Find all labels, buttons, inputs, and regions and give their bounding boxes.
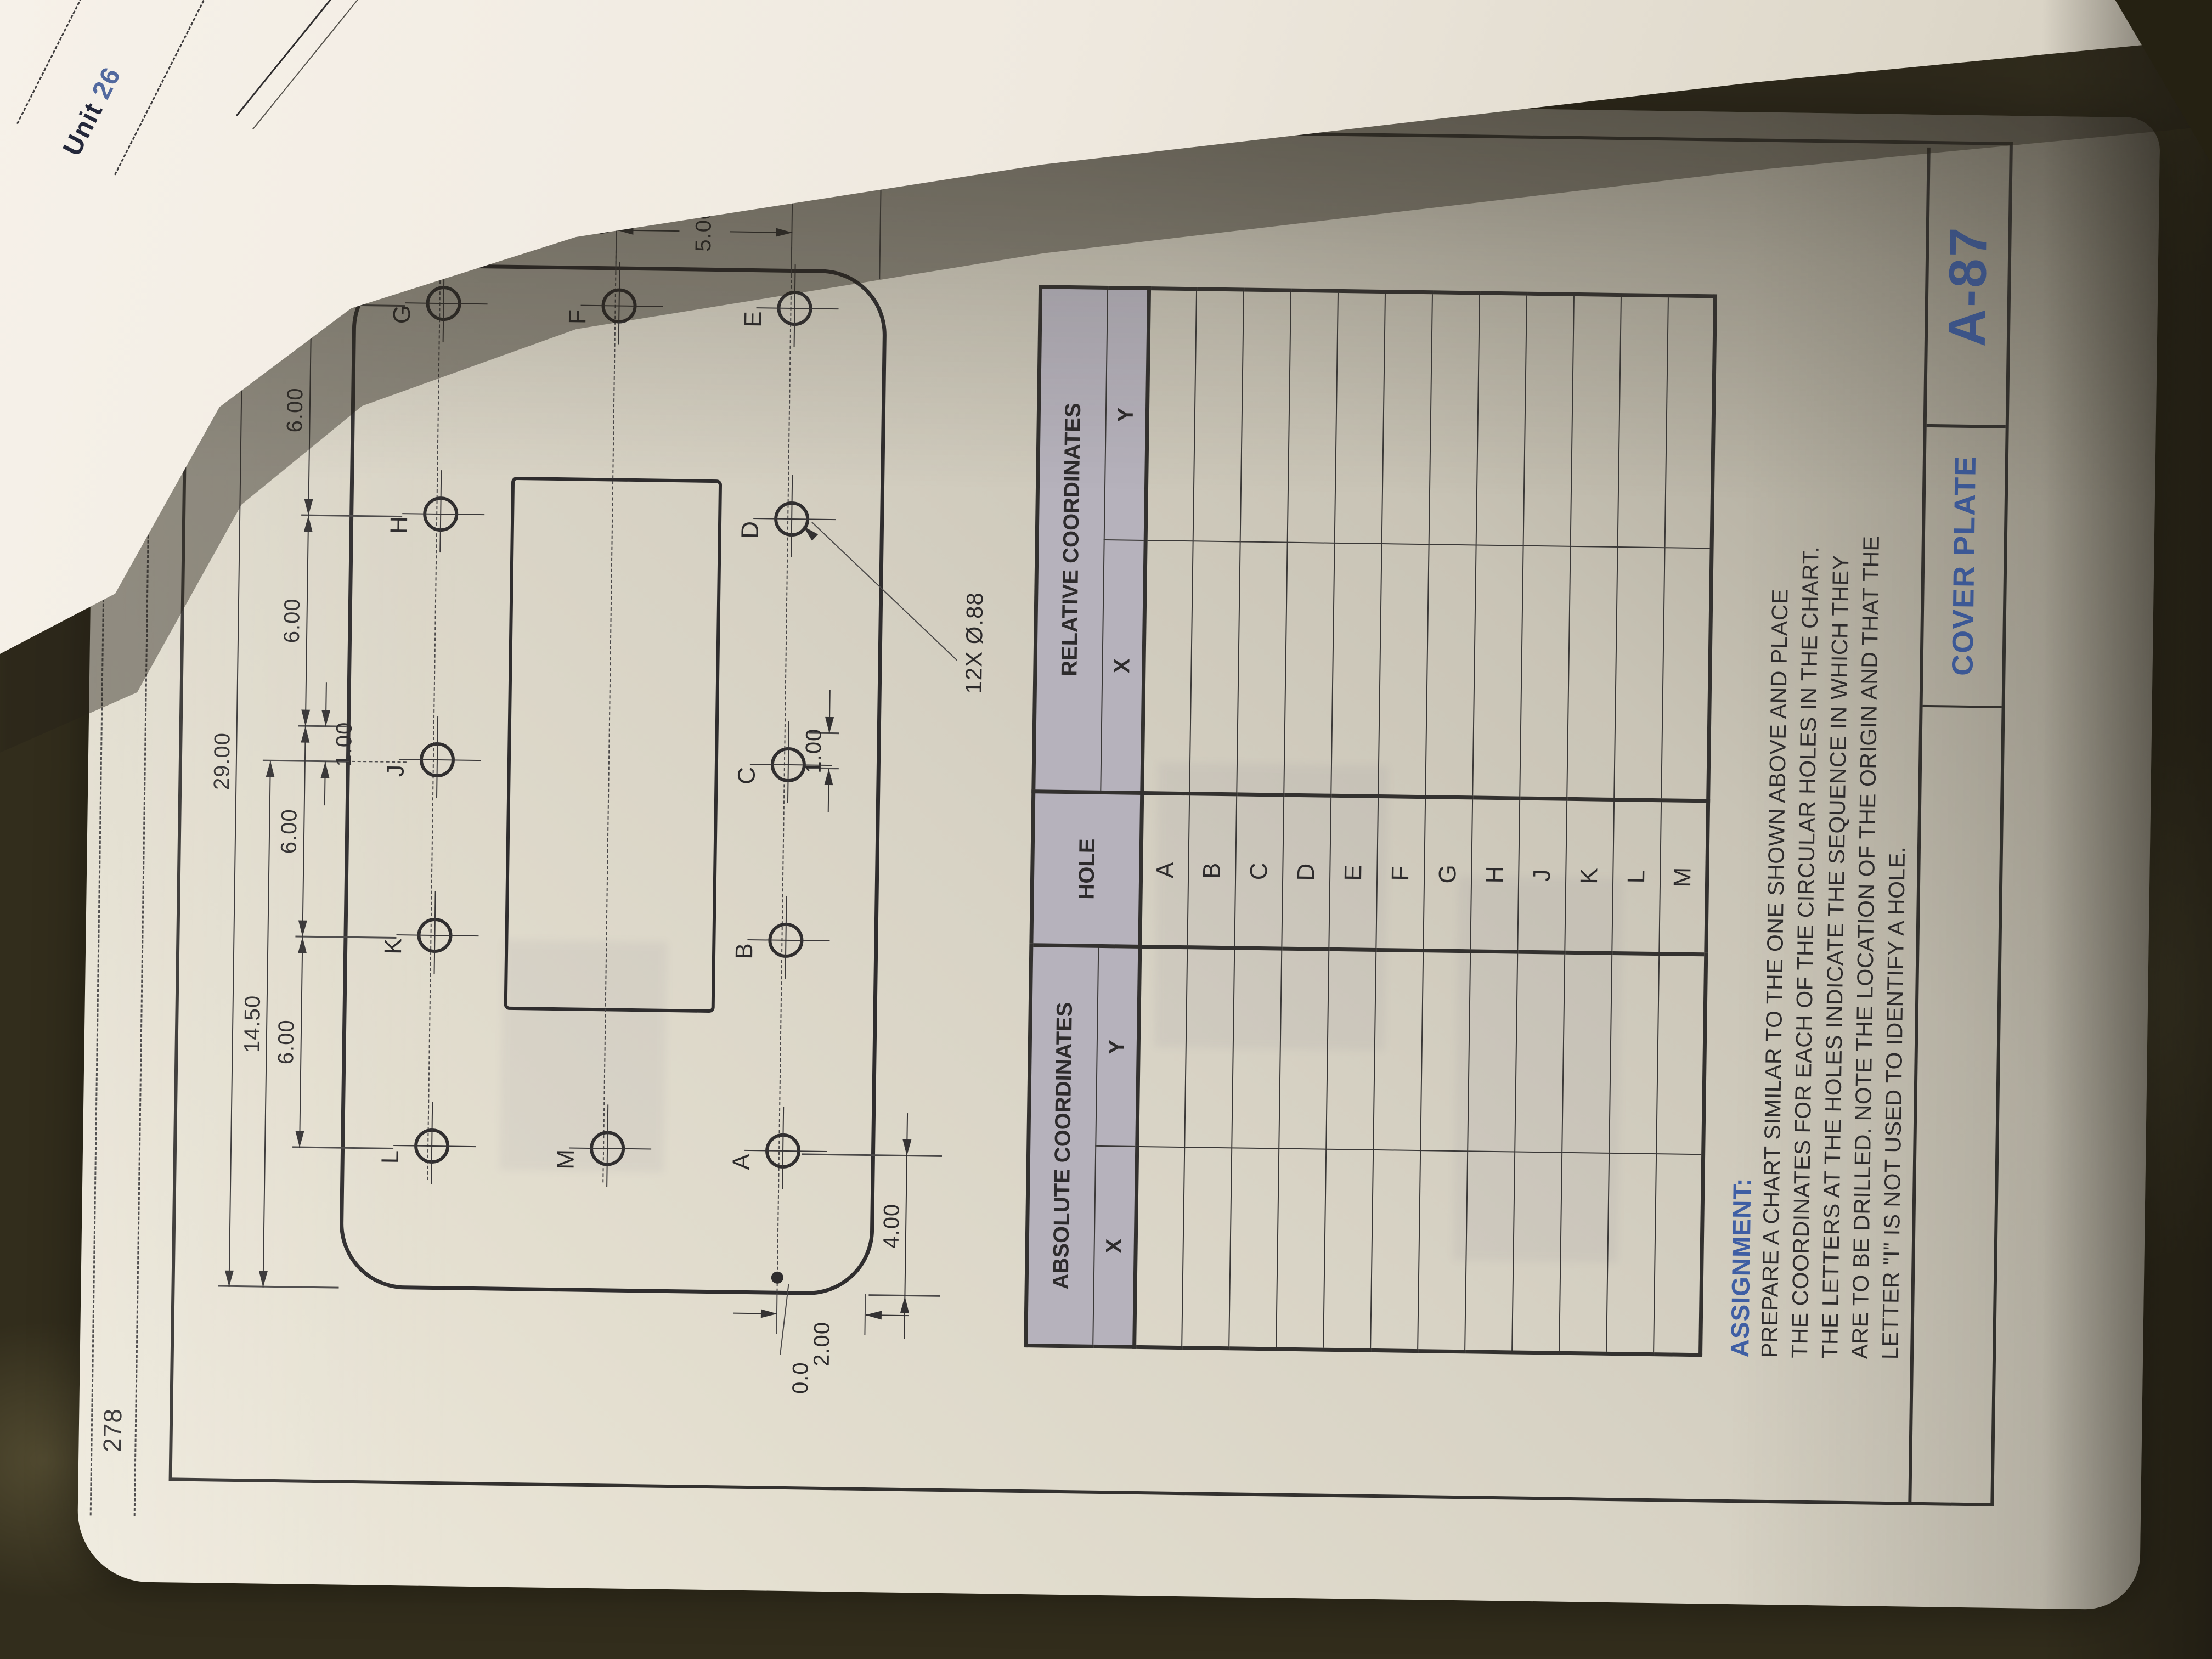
dim-chain-4: 6.00 [283,371,308,449]
hole-label: J [382,752,410,791]
facing-unit-number: 26 [87,62,127,103]
chart-row-hole: E [1329,795,1378,950]
hole-label: H [385,506,413,545]
photo-of-textbook-page: { "page": { "number": "278", "book_title… [0,0,2212,1659]
hole-label: F [564,297,592,336]
dim-arrow [259,1271,268,1288]
dim-arrow [321,710,330,726]
dim-arrow [301,726,309,743]
dim-left-to-j: 14.50 [240,974,266,1074]
dim-arrow [776,228,792,237]
chart-row-hole: F [1376,796,1425,950]
dim-arrow [900,1296,909,1313]
dim-arrow [266,761,274,777]
hole-label: E [740,300,768,339]
facing-frame-line-inner [252,0,564,129]
chart-header-absolute: ABSOLUTE COORDINATES [1026,945,1098,1347]
chart-subheader-rel-y: Y [1104,287,1149,540]
dim-offset-bottom: 1.00 [801,712,827,789]
dim-left-to-a: 4.00 [879,1187,905,1265]
chart-row-hole: B [1187,794,1237,948]
drawing-number: A-87 [1927,148,2010,428]
chart-subheader-rel-x: X [1101,540,1145,793]
dim-arrow [304,499,313,516]
dim-arrow [298,921,307,937]
assignment-block: ASSIGNMENT: PREPARE A CHART SIMILAR TO T… [1725,392,1919,1359]
chart-row-hole: K [1565,799,1614,953]
dim-offset-top: 1.00 [331,706,357,783]
facing-dashed-rule [114,0,310,175]
hole-label: A [727,1142,755,1181]
hole-label: M [552,1140,580,1179]
facing-unit-word: Unit [58,98,109,160]
chart-row-hole: G [1423,797,1472,951]
facing-dashed-rule [16,0,212,124]
hole-label: G [388,295,416,334]
dim-arrow [320,761,329,778]
dim-chain-3: 6.00 [280,582,306,659]
dim-arrow [304,516,313,532]
chart-row-hole: J [1517,798,1567,952]
hole-label: C [733,757,761,795]
chart-header-hole: HOLE [1031,792,1142,947]
chart-subheader-abs-x: X [1093,1146,1137,1347]
facing-unit-heading: Unit 26 [57,62,127,161]
plate-slot-cutout [504,477,723,1013]
dim-arrow [225,1271,234,1287]
hole-label: K [380,927,408,966]
dim-arrow [761,1309,777,1318]
chart-header-relative: RELATIVE COORDINATES [1034,287,1108,793]
hole-label: B [731,932,759,971]
chart-row-hole: L [1612,799,1661,953]
dim-arrow [298,937,307,953]
facing-frame-line [236,0,562,116]
hole-label: L [376,1138,404,1177]
chart-row-hole: C [1234,794,1284,949]
dim-chain-1: 6.00 [274,1003,300,1081]
page-number: 278 [97,1408,127,1452]
dim-arrow [295,1131,304,1147]
dim-arrow [301,710,310,726]
coordinates-chart: ABSOLUTE COORDINATES HOLE RELATIVE COORD… [1024,285,1717,1357]
chart-subheader-abs-y: Y [1096,946,1140,1147]
hole-label: D [736,511,764,550]
chart-row-hole: D [1282,795,1331,949]
dim-overall-width: 29.00 [210,712,236,811]
drawing-title: COVER PLATE [1923,425,2006,708]
book-page: 278 Interpreting Engineering Drawings 29… [77,89,2160,1610]
dim-arrow [902,1139,911,1156]
chart-row-hole: M [1659,800,1708,955]
chart-row-hole: H [1470,798,1520,952]
dim-origin: 0.0 [788,1362,813,1417]
chart-row-hole: A [1140,793,1189,947]
dim-arrow [865,1311,882,1319]
hole-size-note: 12X Ø.88 [961,592,989,694]
dim-chain-2: 6.00 [276,793,302,870]
